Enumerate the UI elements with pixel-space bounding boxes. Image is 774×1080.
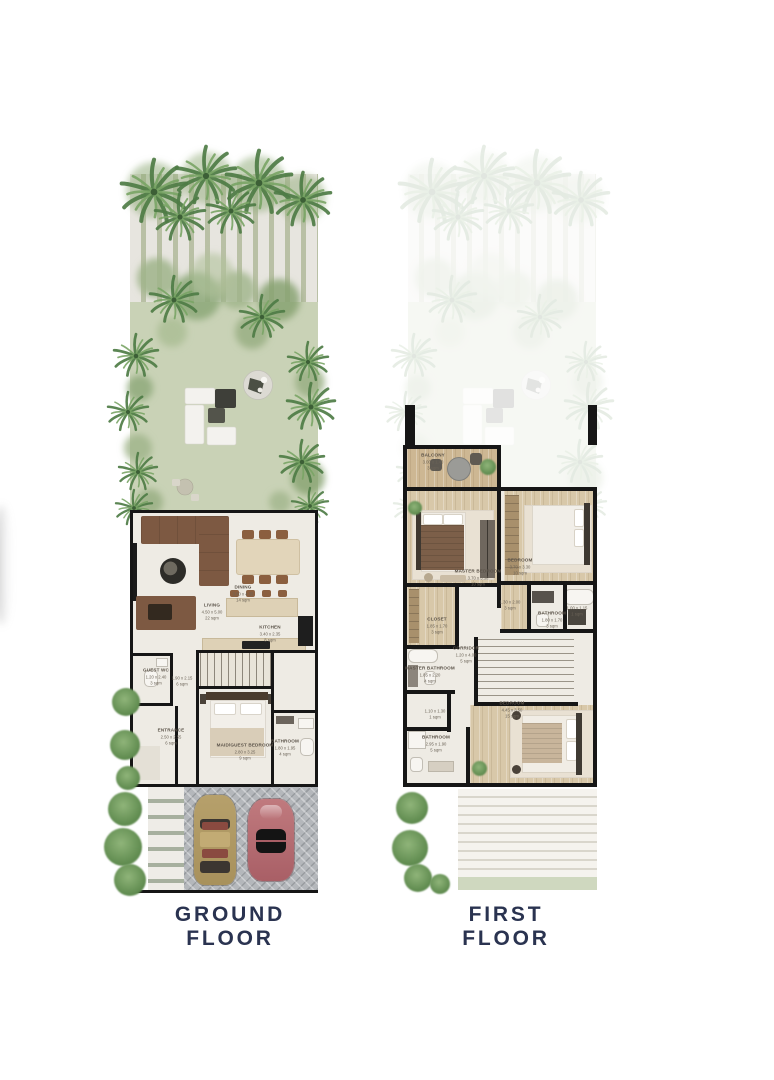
- room-label-bedroom-2: BEDROOM 4.45 x 3.50 15 sqm: [480, 700, 544, 719]
- wall-segment: [130, 653, 172, 656]
- sink: [298, 718, 314, 729]
- plant: [110, 730, 140, 760]
- pillow: [214, 703, 236, 715]
- pouf: [424, 573, 433, 582]
- room-label-entrance: ENTRANCE 2.50 x 2.55 6 sqm: [139, 727, 203, 746]
- wall-segment: [403, 445, 500, 449]
- room-label-bathroom-low: BATHROOM 2.95 x 1.90 5 sqm: [404, 734, 468, 753]
- floor-plan-sheet: LIVING 4.50 x 5.00 22 sqm DINING 3.60 x …: [0, 0, 774, 1080]
- blanket: [421, 525, 464, 570]
- car-tan: [194, 795, 236, 885]
- dining-chair: [259, 575, 271, 584]
- room-label-kitchen: KITCHEN 3.40 x 2.35 8 sqm: [238, 624, 302, 643]
- plant: [408, 501, 422, 515]
- room-label-closet: CLOSET 1.85 x 1.70 3 sqm: [405, 616, 469, 635]
- pillow: [443, 514, 463, 525]
- page-shadow: [0, 505, 12, 625]
- bed-headboard: [584, 503, 590, 565]
- car-rear-window: [200, 861, 230, 873]
- first-floor-house: BALCONY 3.00 x 1.40 3 sqm MASTER BEDROOM…: [400, 405, 597, 787]
- car-seats: [202, 822, 228, 830]
- wall-segment: [130, 510, 318, 513]
- dining-table: [236, 539, 300, 575]
- pergola-roof: [458, 789, 597, 877]
- walkway: [148, 787, 184, 890]
- sink: [156, 658, 168, 667]
- coffee-table: [160, 558, 186, 584]
- wall-segment: [588, 405, 597, 445]
- room-label-balcony: BALCONY 3.00 x 1.40 3 sqm: [401, 452, 465, 471]
- vanity: [428, 761, 454, 772]
- plant: [480, 459, 496, 475]
- wall-segment: [405, 405, 415, 445]
- wall-segment: [130, 890, 318, 893]
- wall-segment: [196, 650, 318, 653]
- dining-chair: [259, 530, 271, 539]
- dining-chair: [276, 530, 288, 539]
- plant: [392, 830, 428, 866]
- nightstand: [200, 694, 206, 704]
- car-pillar: [256, 840, 286, 842]
- blanket: [522, 723, 562, 763]
- dining-chair: [242, 530, 254, 539]
- plant: [112, 688, 140, 716]
- car-roof: [200, 832, 230, 847]
- room-label-small-room-3: 1.10 x 1.30 1 sqm: [403, 709, 467, 722]
- pillow: [240, 703, 262, 715]
- car-red: [248, 799, 294, 881]
- wall-segment: [271, 653, 274, 787]
- bed-headboard: [576, 713, 582, 775]
- wall-segment: [403, 727, 451, 731]
- room-label-corridor: CORRIDOR 1.20 x 4.00 5 sqm: [434, 645, 498, 664]
- room-label-living: LIVING 4.50 x 5.00 22 sqm: [180, 602, 244, 621]
- plant: [396, 792, 428, 824]
- plant: [114, 864, 146, 896]
- sofa: [199, 516, 229, 586]
- toilet: [410, 757, 423, 772]
- dining-chair: [242, 575, 254, 584]
- room-label-master-bathroom: MASTER BATHROOM 1.85 x 2.20 4 sqm: [398, 665, 462, 684]
- room-label-hall: 1.90 x 2.15 6 sqm: [150, 676, 214, 689]
- plant: [116, 766, 140, 790]
- plant: [430, 874, 450, 894]
- car-seats: [202, 849, 228, 858]
- room-label-small-room-2: 1.00 x 1.15 1 sqm: [545, 606, 609, 619]
- car-hood-highlight: [260, 805, 282, 819]
- wall-segment: [196, 650, 199, 787]
- plant: [104, 828, 142, 866]
- wall-segment: [271, 710, 318, 713]
- garden-artwork: [112, 150, 328, 510]
- pillow: [574, 509, 584, 527]
- pillow: [423, 514, 443, 525]
- bed-headboard: [206, 692, 268, 700]
- pillow: [574, 529, 584, 547]
- ground-floor-caption: GROUND FLOOR: [140, 903, 320, 951]
- room-label-bathroom: BATHROOM 1.80 x 1.95 4 sqm: [253, 738, 317, 757]
- wall-segment: [500, 581, 597, 585]
- plant: [472, 761, 487, 776]
- bathtub: [564, 589, 594, 605]
- garden-strip: [458, 877, 597, 890]
- dining-chair: [276, 575, 288, 584]
- ground-floor-house: LIVING 4.50 x 5.00 22 sqm DINING 3.60 x …: [130, 510, 318, 787]
- wall-segment: [593, 487, 597, 787]
- room-label-dining: DINING 3.60 x 4.35 14 sqm: [211, 584, 275, 603]
- first-floor-caption: FIRST FLOOR: [421, 903, 591, 951]
- cushion: [148, 604, 172, 620]
- garage: [130, 787, 318, 893]
- plant: [404, 864, 432, 892]
- bar-stool: [278, 590, 287, 597]
- nightstand: [512, 765, 521, 774]
- plant: [108, 792, 142, 826]
- wall-segment: [403, 783, 597, 787]
- room-label-bedroom: BEDROOM 3.70 x 3.30 10 sqm: [488, 557, 552, 576]
- vanity: [276, 716, 294, 724]
